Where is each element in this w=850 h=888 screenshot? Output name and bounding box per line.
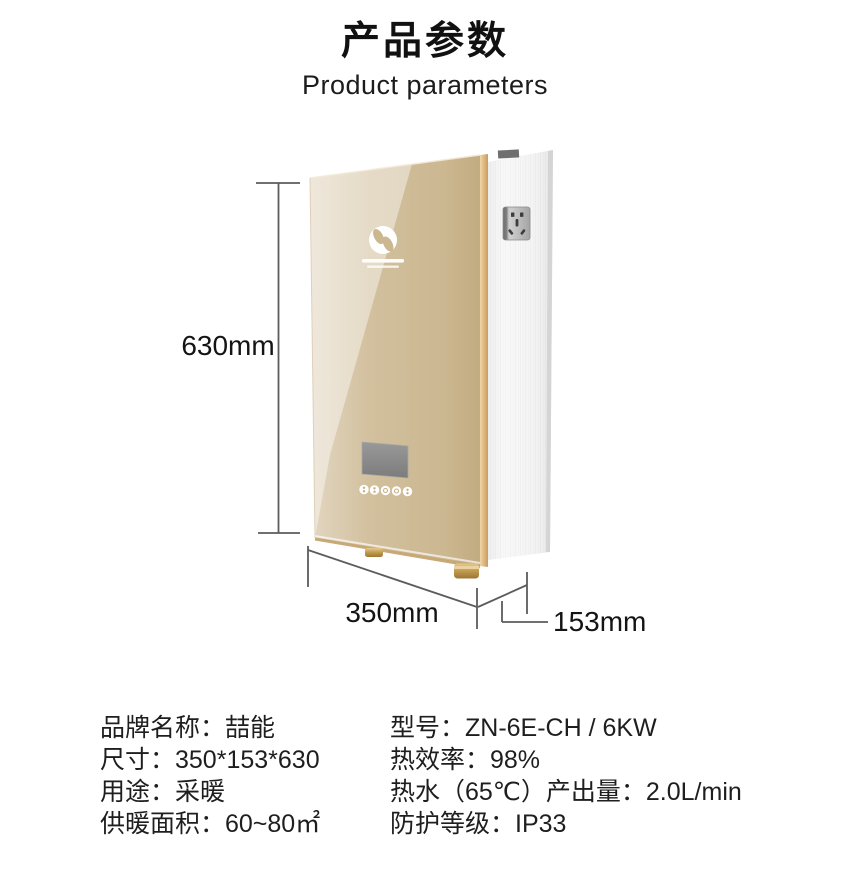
spec-row-model: 型号：ZN-6E-CH / 6KW (390, 712, 742, 744)
device-display (362, 442, 408, 478)
dimension-height-label: 630mm (181, 330, 274, 361)
pipe-fitting-left (365, 548, 383, 557)
device-gold-edge (480, 154, 488, 567)
power-socket (503, 207, 530, 240)
spec-row-brand: 品牌名称：喆能 (100, 712, 320, 744)
spec-row-heating-area: 供暖面积：60~80㎡ (100, 808, 320, 840)
spec-row-size: 尺寸：350*153*630 (100, 744, 320, 776)
heater-device (310, 149, 553, 578)
spec-row-hot-water-output: 热水（65℃）产出量：2.0L/min (390, 776, 742, 808)
logo-subtext-bar (367, 266, 399, 268)
page-subtitle: Product parameters (0, 71, 850, 101)
logo-text-bar (362, 259, 404, 263)
mounting-bracket (498, 149, 519, 158)
page-title: 产品参数 (0, 20, 850, 65)
spec-column-left: 品牌名称：喆能 尺寸：350*153*630 用途：采暖 供暖面积：60~80㎡ (100, 712, 320, 840)
spec-row-usage: 用途：采暖 (100, 776, 320, 808)
spec-row-efficiency: 热效率：98% (390, 744, 742, 776)
spec-row-protection-rating: 防护等级：IP33 (390, 808, 742, 840)
control-button (370, 485, 379, 494)
control-button (403, 487, 412, 496)
control-button (381, 486, 390, 495)
dimension-depth-label: 153mm (553, 606, 646, 637)
product-illustration: 630mm 350mm 153mm (0, 135, 850, 655)
spec-column-right: 型号：ZN-6E-CH / 6KW 热效率：98% 热水（65℃）产出量：2.0… (390, 712, 742, 840)
page-header: 产品参数 Product parameters (0, 0, 850, 101)
control-button (392, 486, 401, 495)
control-button (359, 485, 368, 494)
device-front-panel (310, 155, 480, 567)
dimension-depth (478, 572, 548, 622)
dimension-width-label: 350mm (345, 597, 438, 628)
pipe-fitting-right (454, 564, 479, 579)
